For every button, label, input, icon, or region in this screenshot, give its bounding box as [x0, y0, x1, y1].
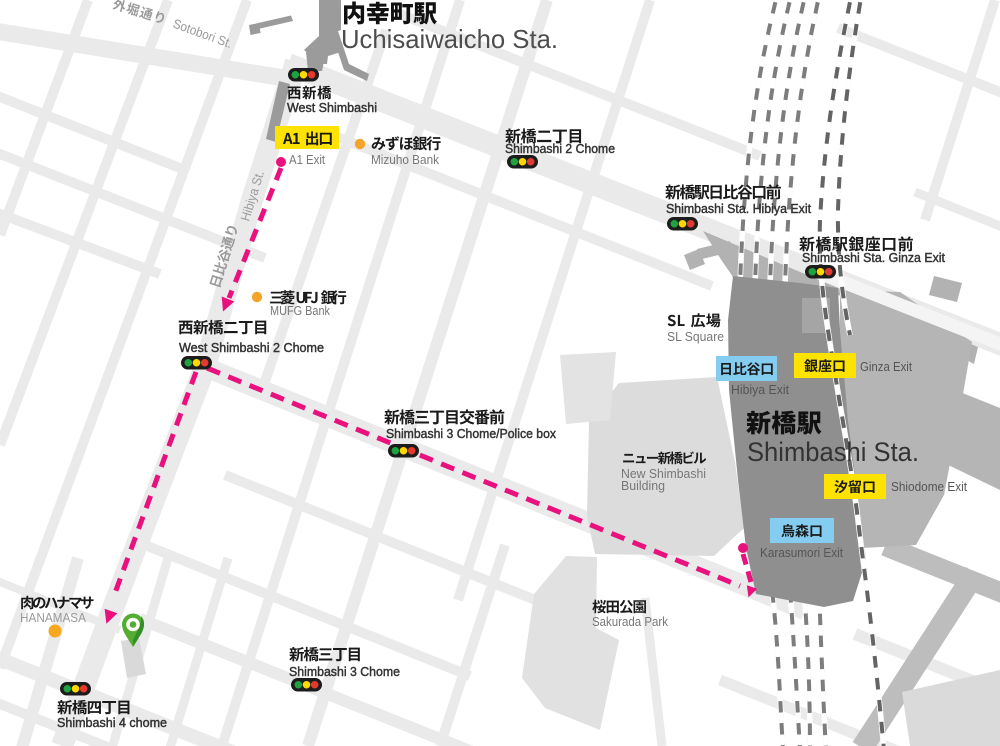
svg-text:Sakurada Park: Sakurada Park — [592, 614, 668, 629]
svg-text:SL Square: SL Square — [667, 329, 724, 344]
svg-text:Shimbashi Sta. Ginza Exit: Shimbashi Sta. Ginza Exit — [802, 250, 945, 265]
svg-text:West Shimbashi: West Shimbashi — [287, 101, 377, 115]
svg-text:HANAMASA: HANAMASA — [20, 610, 86, 625]
svg-text:Shimbashi Sta. Hibiya Exit: Shimbashi Sta. Hibiya Exit — [666, 201, 811, 216]
svg-text:Shimbashi 4 chome: Shimbashi 4 chome — [57, 715, 167, 730]
svg-text:MUFG Bank: MUFG Bank — [270, 303, 330, 318]
svg-text:Shimbashi 3 Chome: Shimbashi 3 Chome — [289, 664, 400, 679]
svg-text:Hibiya Exit: Hibiya Exit — [731, 382, 789, 397]
svg-text:Shimbashi 2 Chome: Shimbashi 2 Chome — [505, 141, 615, 156]
svg-text:Shimbashi 3 Chome/Police box: Shimbashi 3 Chome/Police box — [386, 426, 556, 441]
svg-text:Building: Building — [621, 479, 665, 493]
svg-text:Ginza Exit: Ginza Exit — [860, 359, 912, 374]
svg-text:A1 Exit: A1 Exit — [289, 152, 325, 167]
svg-text:Karasumori Exit: Karasumori Exit — [760, 545, 843, 560]
svg-text:Uchisaiwaicho Sta.: Uchisaiwaicho Sta. — [341, 24, 558, 54]
svg-text:West Shimbashi 2 Chome: West Shimbashi 2 Chome — [179, 340, 324, 355]
svg-text:Mizuho Bank: Mizuho Bank — [371, 152, 439, 167]
svg-text:Shiodome Exit: Shiodome Exit — [891, 479, 967, 494]
svg-text:Shimbashi Sta.: Shimbashi Sta. — [747, 437, 919, 467]
